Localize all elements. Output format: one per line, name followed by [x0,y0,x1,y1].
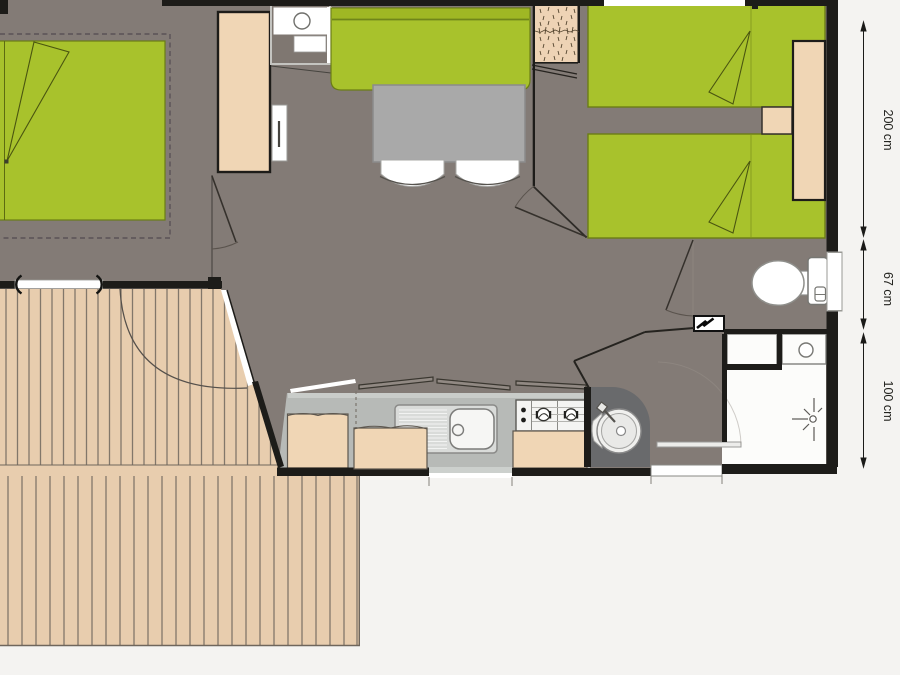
svg-text:100 cm: 100 cm [881,381,895,422]
svg-text:67 cm: 67 cm [881,272,895,306]
svg-text:200 cm: 200 cm [881,110,895,151]
